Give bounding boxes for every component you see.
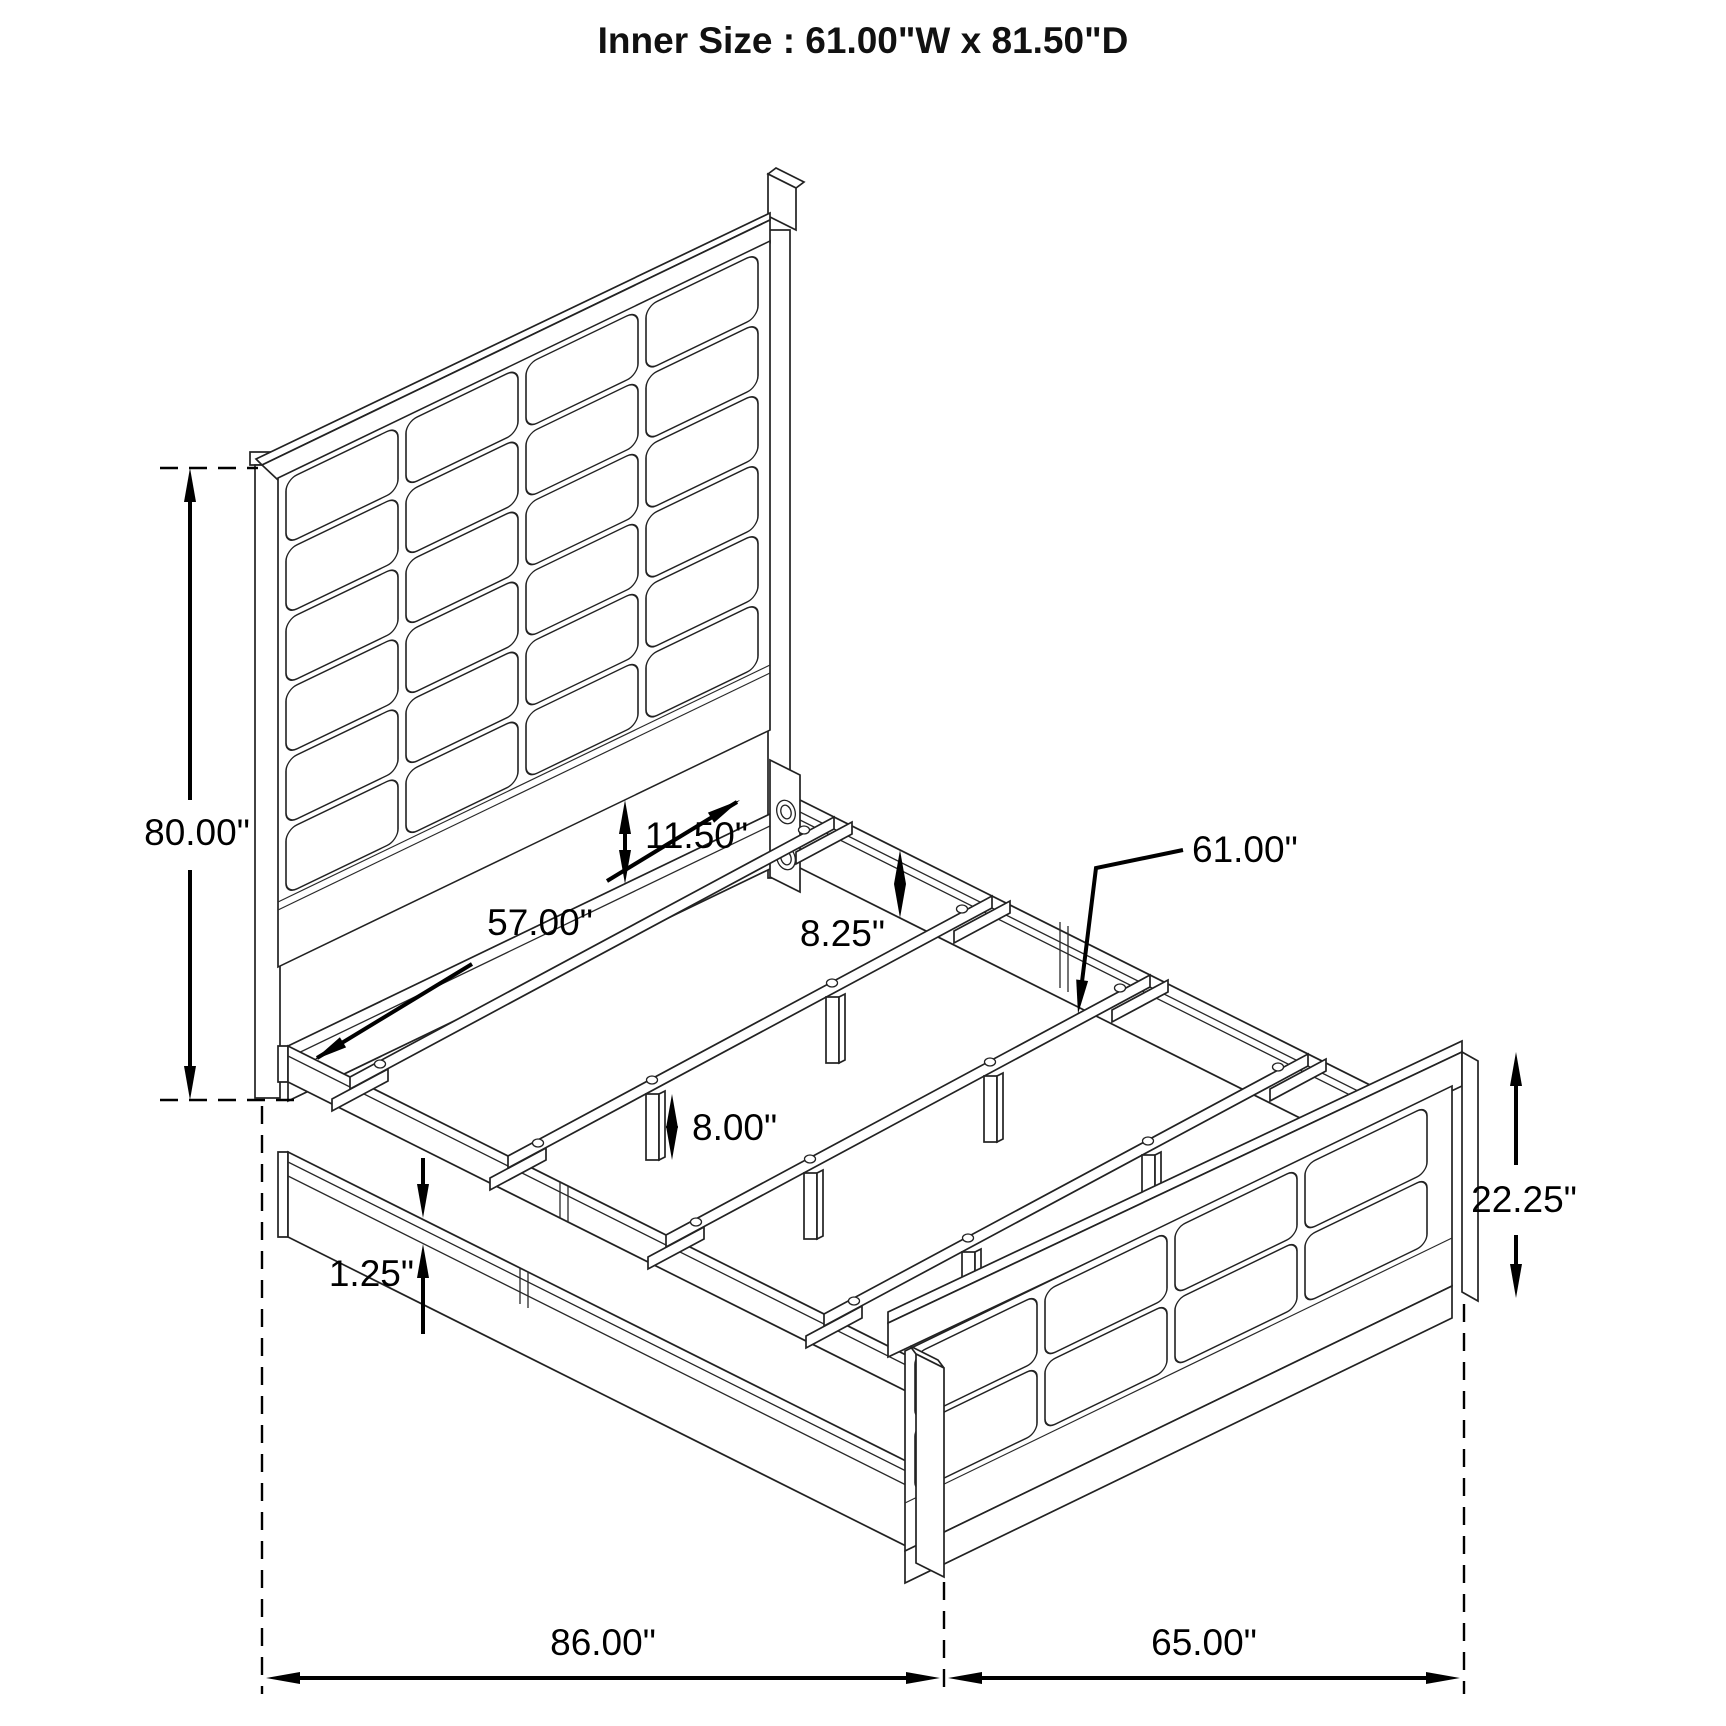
support-leg — [984, 1073, 1003, 1142]
footboard-right-side — [1462, 1052, 1478, 1301]
screw — [647, 1076, 658, 1084]
support-leg — [826, 994, 845, 1063]
dim-label-slat-length: 61.00" — [1192, 829, 1298, 870]
screw — [963, 1234, 974, 1242]
screw — [375, 1060, 386, 1068]
dim-label-overall-width: 65.00" — [1151, 1622, 1257, 1663]
screw — [985, 1058, 996, 1066]
screw — [827, 979, 838, 987]
support-leg — [646, 1091, 665, 1160]
dim-headboard-height: 80.00" — [144, 468, 250, 1100]
screw — [849, 1297, 860, 1305]
dim-leg-height: 8.00" — [666, 1094, 777, 1160]
dim-label-lip-thickness: 1.25" — [329, 1253, 414, 1294]
dim-footboard-height: 22.25" — [1471, 1052, 1577, 1298]
dim-overall-width: 65.00" — [948, 1622, 1460, 1684]
dim-label-headboard-height: 80.00" — [144, 812, 250, 853]
base-rail-end-cap — [278, 1152, 288, 1237]
dim-overall-length: 86.00" — [266, 1622, 940, 1684]
screw — [799, 826, 810, 834]
screw — [805, 1155, 816, 1163]
dim-label-leg-height: 8.00" — [692, 1107, 777, 1148]
screw — [1143, 1137, 1154, 1145]
dim-label-rail-height: 8.25" — [800, 913, 885, 954]
dim-label-inner-width: 57.00" — [487, 902, 593, 943]
diagram-page: Inner Size : 61.00"W x 81.50"D — [0, 0, 1726, 1726]
bracket-plate — [770, 760, 800, 892]
support-leg — [804, 1170, 823, 1239]
screw — [533, 1139, 544, 1147]
footboard-left-post — [916, 1354, 944, 1577]
dim-label-footboard-height: 22.25" — [1471, 1179, 1577, 1220]
bed-frame-diagram: 80.00" 11.50" 57.00" — [0, 0, 1726, 1726]
footboard-face — [905, 1086, 1452, 1551]
screw — [691, 1218, 702, 1226]
mounting-bracket — [770, 760, 800, 892]
screw — [957, 905, 968, 913]
left-rail-end-cap — [278, 1046, 288, 1082]
dim-label-overall-length: 86.00" — [550, 1622, 656, 1663]
headboard-left-post — [255, 465, 280, 1098]
screw — [1115, 984, 1126, 992]
screw — [1273, 1063, 1284, 1071]
